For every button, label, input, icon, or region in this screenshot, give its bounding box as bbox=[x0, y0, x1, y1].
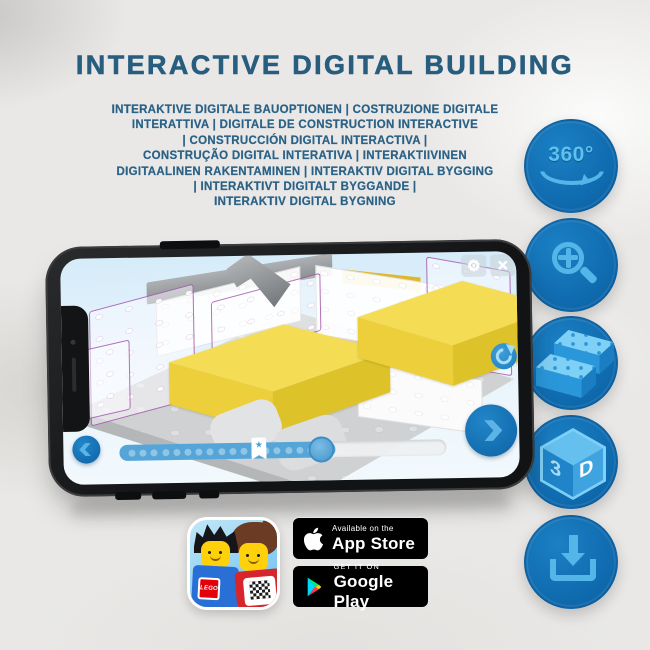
girl-minifig-face bbox=[239, 543, 268, 571]
star-icon: ★ bbox=[255, 439, 263, 449]
cube-face-3: 3 bbox=[550, 456, 561, 484]
settings-gear-button[interactable]: ⚙ bbox=[461, 255, 486, 277]
subtitle-line: INTERATTIVA | DIGITALE DE CONSTRUCTION I… bbox=[75, 118, 535, 133]
girl-minifig-torso bbox=[234, 568, 280, 610]
download-icon bbox=[550, 535, 596, 591]
close-icon: × bbox=[497, 255, 508, 276]
feature-3d-button[interactable]: 3 D bbox=[524, 415, 618, 509]
app-store-name: App Store bbox=[332, 534, 415, 554]
feature-zoom-button[interactable] bbox=[524, 218, 618, 312]
boy-minifig-face bbox=[201, 541, 230, 568]
subtitle-line: | INTERAKTIVT DIGITALT BYGGANDE | bbox=[75, 180, 535, 195]
subtitle-translations: INTERAKTIVE DIGITALE BAUOPTIONEN | COSTR… bbox=[75, 103, 535, 211]
chevron-right-icon bbox=[477, 417, 505, 443]
phone-side-button bbox=[160, 240, 220, 249]
google-play-badge[interactable]: GET IT ON Google Play bbox=[292, 565, 429, 608]
qr-code bbox=[249, 580, 270, 600]
poster: INTERACTIVE DIGITAL BUILDING INTERAKTIVE… bbox=[0, 0, 650, 650]
google-play-name: Google Play bbox=[334, 572, 428, 612]
phone-volume-button bbox=[115, 492, 141, 500]
phone-power-button bbox=[199, 490, 219, 498]
boy-minifig-torso: LEGO bbox=[191, 565, 239, 610]
app-store-badge[interactable]: Available on the App Store bbox=[292, 517, 429, 560]
subtitle-line: INTERAKTIV DIGITAL BYGNING bbox=[75, 195, 535, 210]
google-play-icon bbox=[303, 574, 326, 600]
phone-notch bbox=[61, 306, 90, 432]
360-degree-icon: 360° bbox=[526, 143, 616, 167]
chevron-left-icon bbox=[77, 441, 95, 457]
phone-screen[interactable]: ⚙ × ★ bbox=[60, 251, 520, 485]
feature-download-button[interactable] bbox=[524, 515, 618, 609]
close-button[interactable]: × bbox=[490, 254, 515, 276]
speaker-slit bbox=[72, 358, 77, 392]
subtitle-line: | CONSTRUCCIÓN DIGITAL INTERACTIVA | bbox=[75, 134, 535, 149]
phone-volume-button bbox=[152, 491, 186, 500]
subtitle-line: INTERAKTIVE DIGITALE BAUOPTIONEN | COSTR… bbox=[75, 103, 535, 118]
lego-logo: LEGO bbox=[197, 577, 220, 600]
app-store-tagline: Available on the bbox=[332, 524, 415, 533]
gear-icon: ⚙ bbox=[467, 257, 481, 275]
subtitle-line: DIGITAALINEN RAKENTAMINEN | INTERAKTIV D… bbox=[75, 165, 535, 180]
page-title: INTERACTIVE DIGITAL BUILDING bbox=[0, 50, 650, 81]
phone-mockup: ⚙ × ★ bbox=[45, 239, 535, 497]
yellow-bed-brick bbox=[350, 272, 520, 391]
apple-icon bbox=[303, 526, 324, 552]
feature-brick-button[interactable] bbox=[524, 316, 618, 410]
feature-360-rotation-button[interactable]: 360° bbox=[524, 119, 618, 213]
lego-app-icon[interactable]: LEGO bbox=[187, 517, 280, 610]
google-play-tagline: GET IT ON bbox=[334, 562, 428, 571]
3d-cube-icon: 3 D bbox=[543, 431, 603, 497]
lego-bricks-icon bbox=[540, 330, 608, 400]
subtitle-line: CONSTRUÇÃO DIGITAL INTERATIVA | INTERAKT… bbox=[75, 149, 535, 164]
camera-dot bbox=[70, 340, 75, 345]
